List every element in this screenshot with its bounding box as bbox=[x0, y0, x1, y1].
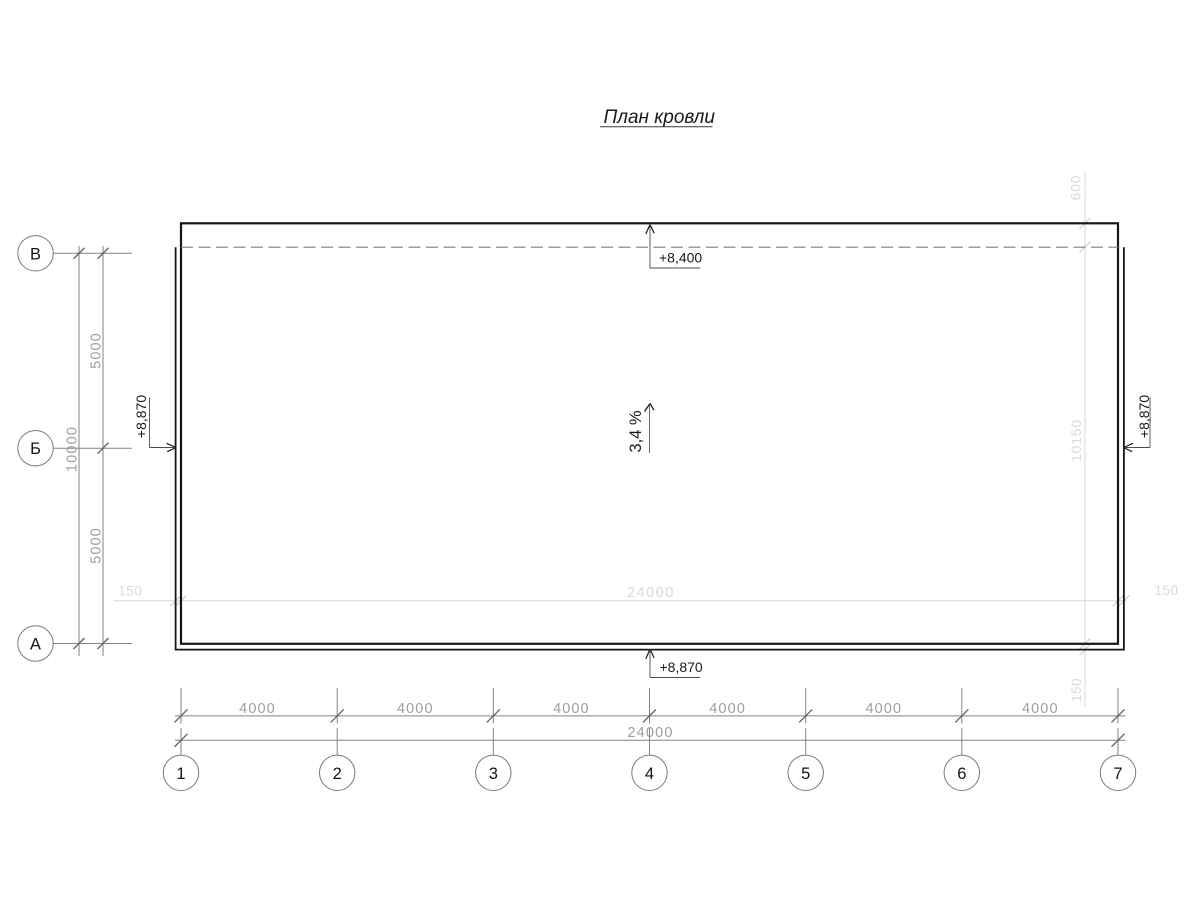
svg-text:10150: 10150 bbox=[1068, 419, 1084, 462]
svg-text:4000: 4000 bbox=[553, 701, 590, 717]
svg-text:4000: 4000 bbox=[865, 701, 902, 717]
svg-text:2: 2 bbox=[333, 765, 342, 783]
svg-text:600: 600 bbox=[1067, 175, 1083, 201]
svg-text:150: 150 bbox=[1069, 678, 1084, 702]
svg-text:6: 6 bbox=[957, 765, 966, 783]
svg-text:+8,870: +8,870 bbox=[133, 395, 149, 438]
svg-text:5000: 5000 bbox=[89, 332, 105, 369]
svg-text:4000: 4000 bbox=[239, 701, 276, 717]
svg-text:3: 3 bbox=[489, 765, 498, 783]
svg-text:150: 150 bbox=[118, 584, 142, 599]
svg-text:24000: 24000 bbox=[627, 725, 673, 741]
svg-text:План кровли: План кровли bbox=[604, 107, 716, 128]
svg-text:+8,400: +8,400 bbox=[659, 249, 702, 265]
svg-text:5: 5 bbox=[801, 765, 810, 783]
svg-text:10000: 10000 bbox=[65, 426, 81, 472]
svg-text:4: 4 bbox=[645, 765, 654, 783]
svg-text:3,4 %: 3,4 % bbox=[627, 410, 645, 453]
svg-text:Б: Б bbox=[30, 440, 41, 458]
svg-text:В: В bbox=[30, 245, 41, 263]
svg-text:150: 150 bbox=[1154, 583, 1178, 598]
svg-text:24000: 24000 bbox=[627, 585, 675, 601]
svg-text:4000: 4000 bbox=[397, 701, 434, 717]
svg-text:5000: 5000 bbox=[89, 527, 105, 564]
svg-text:4000: 4000 bbox=[709, 701, 746, 717]
svg-text:+8,870: +8,870 bbox=[1136, 395, 1152, 438]
svg-text:7: 7 bbox=[1113, 765, 1122, 783]
svg-text:4000: 4000 bbox=[1022, 701, 1059, 717]
svg-text:+8,870: +8,870 bbox=[660, 659, 703, 675]
svg-text:А: А bbox=[30, 636, 41, 654]
svg-text:1: 1 bbox=[176, 765, 185, 783]
